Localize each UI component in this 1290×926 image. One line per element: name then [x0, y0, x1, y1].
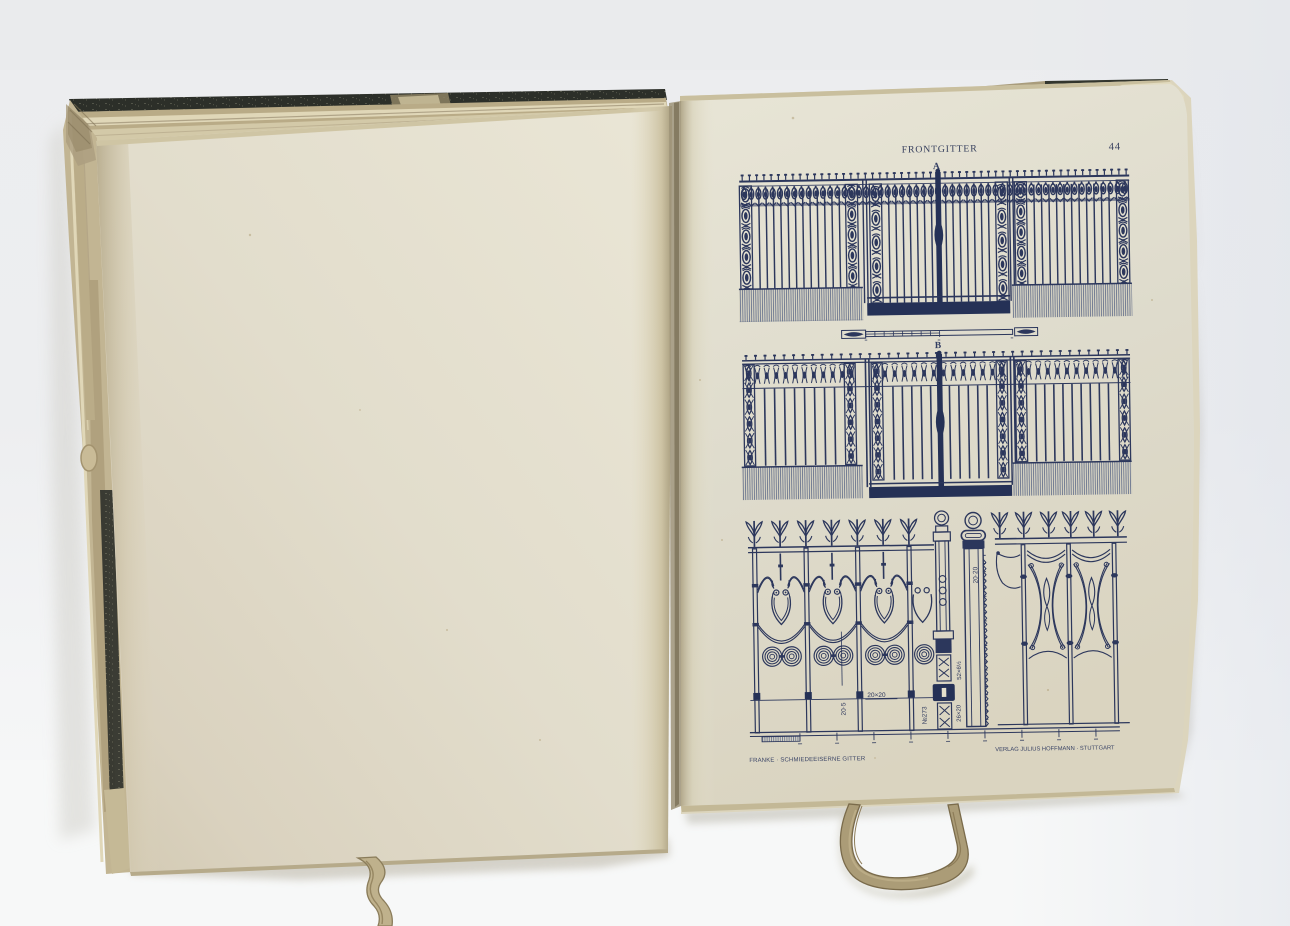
svg-text:20·5: 20·5: [840, 702, 847, 716]
svg-text:44: 44: [1109, 142, 1121, 153]
svg-text:52×6½: 52×6½: [956, 661, 963, 680]
svg-text:№273: №273: [921, 706, 928, 724]
svg-text:20·20: 20·20: [972, 566, 979, 583]
svg-text:20×20: 20×20: [867, 692, 886, 699]
svg-text:B: B: [935, 341, 942, 351]
svg-text:FRONTGITTER: FRONTGITTER: [902, 143, 978, 155]
svg-text:26×20: 26×20: [956, 704, 962, 722]
